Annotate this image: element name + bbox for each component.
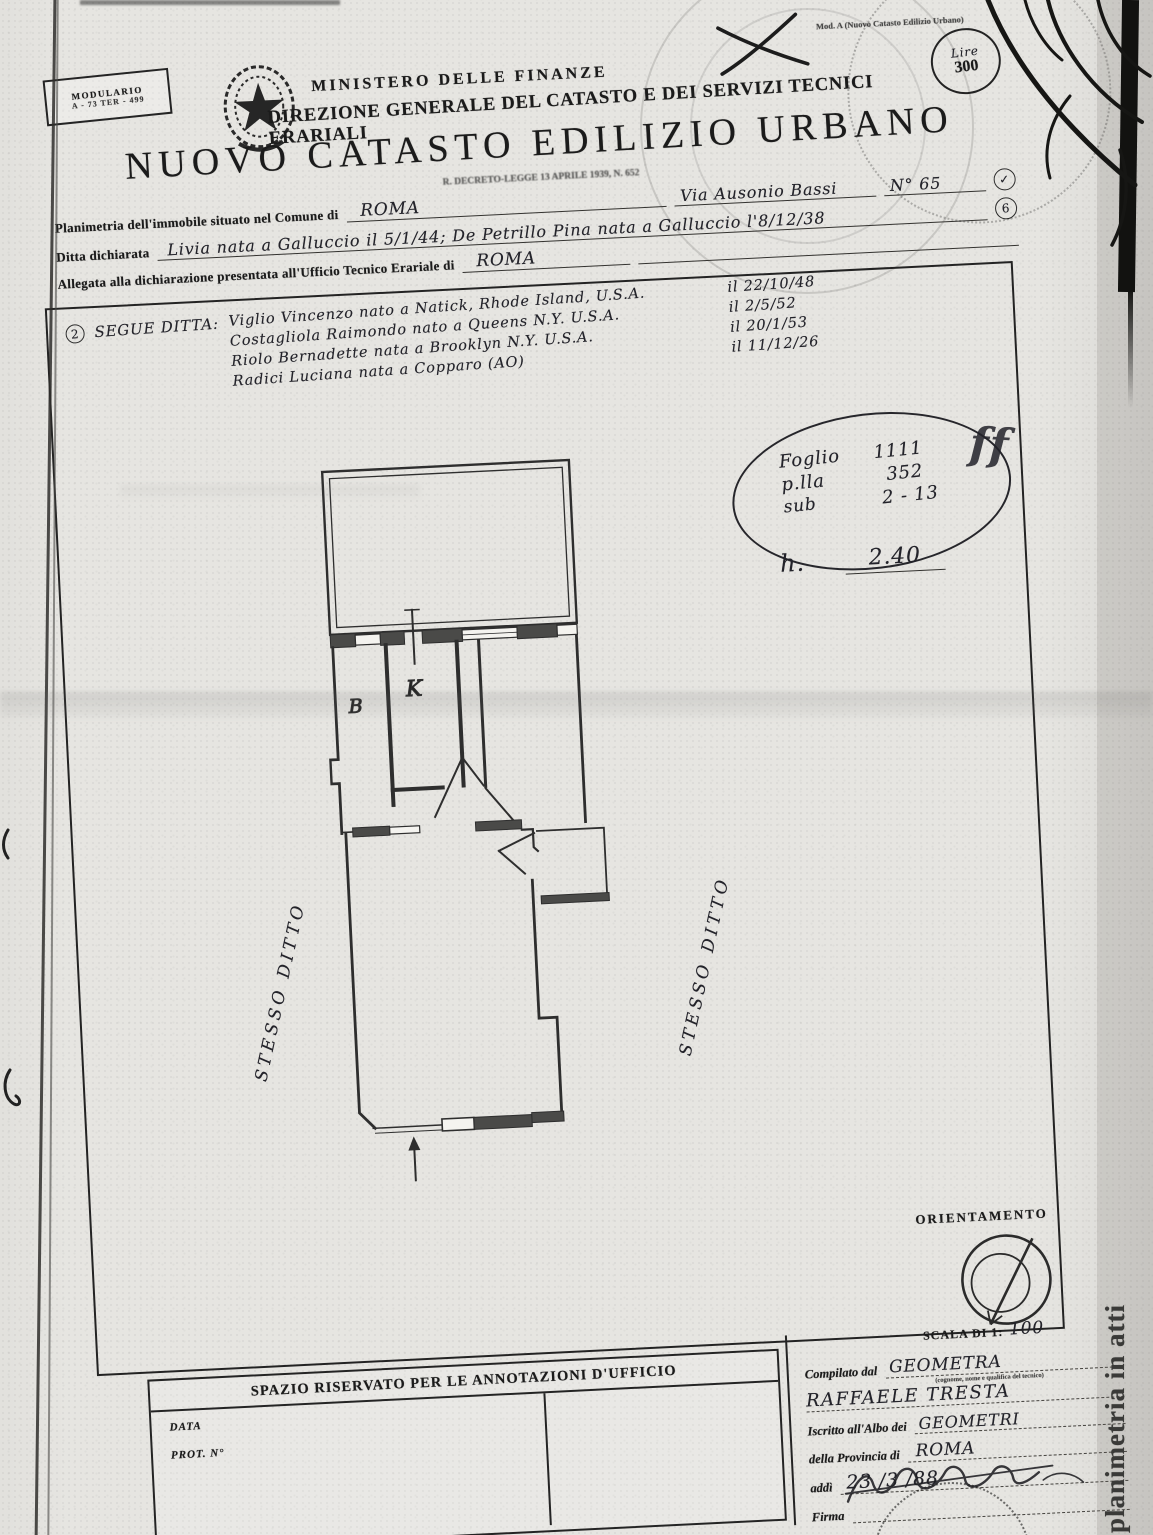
floor-plan: B K bbox=[315, 448, 651, 1207]
scan-streak bbox=[80, 0, 340, 5]
compiled-label: Compilato dal bbox=[804, 1364, 877, 1383]
signature-label: Firma bbox=[811, 1509, 844, 1526]
street-value: Via Ausonio Bassi bbox=[674, 177, 877, 207]
annotations-prot-label: PROT. N° bbox=[171, 1431, 546, 1461]
annotations-box: SPAZIO RISERVATO PER LE ANNOTAZIONI D'UF… bbox=[147, 1349, 787, 1535]
date-label: addì bbox=[810, 1480, 833, 1496]
segue-circled-2: 2 bbox=[65, 324, 85, 344]
oval-scribble: ff bbox=[968, 418, 1010, 471]
albo-value: GEOMETRI bbox=[914, 1404, 1125, 1434]
scanned-cadastral-document: MODULARIO A - 73 TER - 499 MINISTERO DEL… bbox=[0, 0, 1153, 1535]
sub-label: sub bbox=[783, 494, 818, 518]
scan-smudge-band bbox=[120, 485, 420, 499]
x-mark-scribble bbox=[711, 8, 814, 83]
scale-label: SCALA DI 1: bbox=[923, 1325, 1004, 1344]
ditta-label: Ditta dichiarata bbox=[56, 245, 150, 266]
segue-label: Segue ditta: bbox=[94, 315, 223, 399]
branch-scribbles bbox=[930, 0, 1153, 260]
orientation-compass-icon bbox=[948, 1225, 1065, 1334]
scan-smudge-band bbox=[0, 692, 1153, 718]
height-value: 2.40 bbox=[844, 542, 945, 575]
annotations-right-cell bbox=[545, 1382, 784, 1525]
foglio-value: 1111 bbox=[873, 437, 924, 463]
segue-row-date: il 2/5/52 bbox=[728, 295, 797, 316]
plla-value: 352 bbox=[885, 460, 924, 485]
annotations-data-label: DATA bbox=[169, 1403, 544, 1433]
albo-label: Iscritto all'Albo dei bbox=[807, 1420, 907, 1440]
modulario-stamp: MODULARIO A - 73 TER - 499 bbox=[43, 68, 173, 126]
scale-value: 100 bbox=[1009, 1318, 1045, 1340]
plla-label: p.lla bbox=[780, 470, 825, 495]
height-label: h. bbox=[779, 549, 805, 578]
segue-row-date: il 20/1/53 bbox=[730, 315, 809, 336]
stray-pen-marks bbox=[0, 820, 30, 1140]
section-divider bbox=[785, 1335, 797, 1525]
binding-bar-fade bbox=[1128, 288, 1133, 408]
margin-vertical-note: planimetria in atti bbox=[1100, 1265, 1131, 1533]
ufficio-value: ROMA bbox=[462, 244, 631, 273]
